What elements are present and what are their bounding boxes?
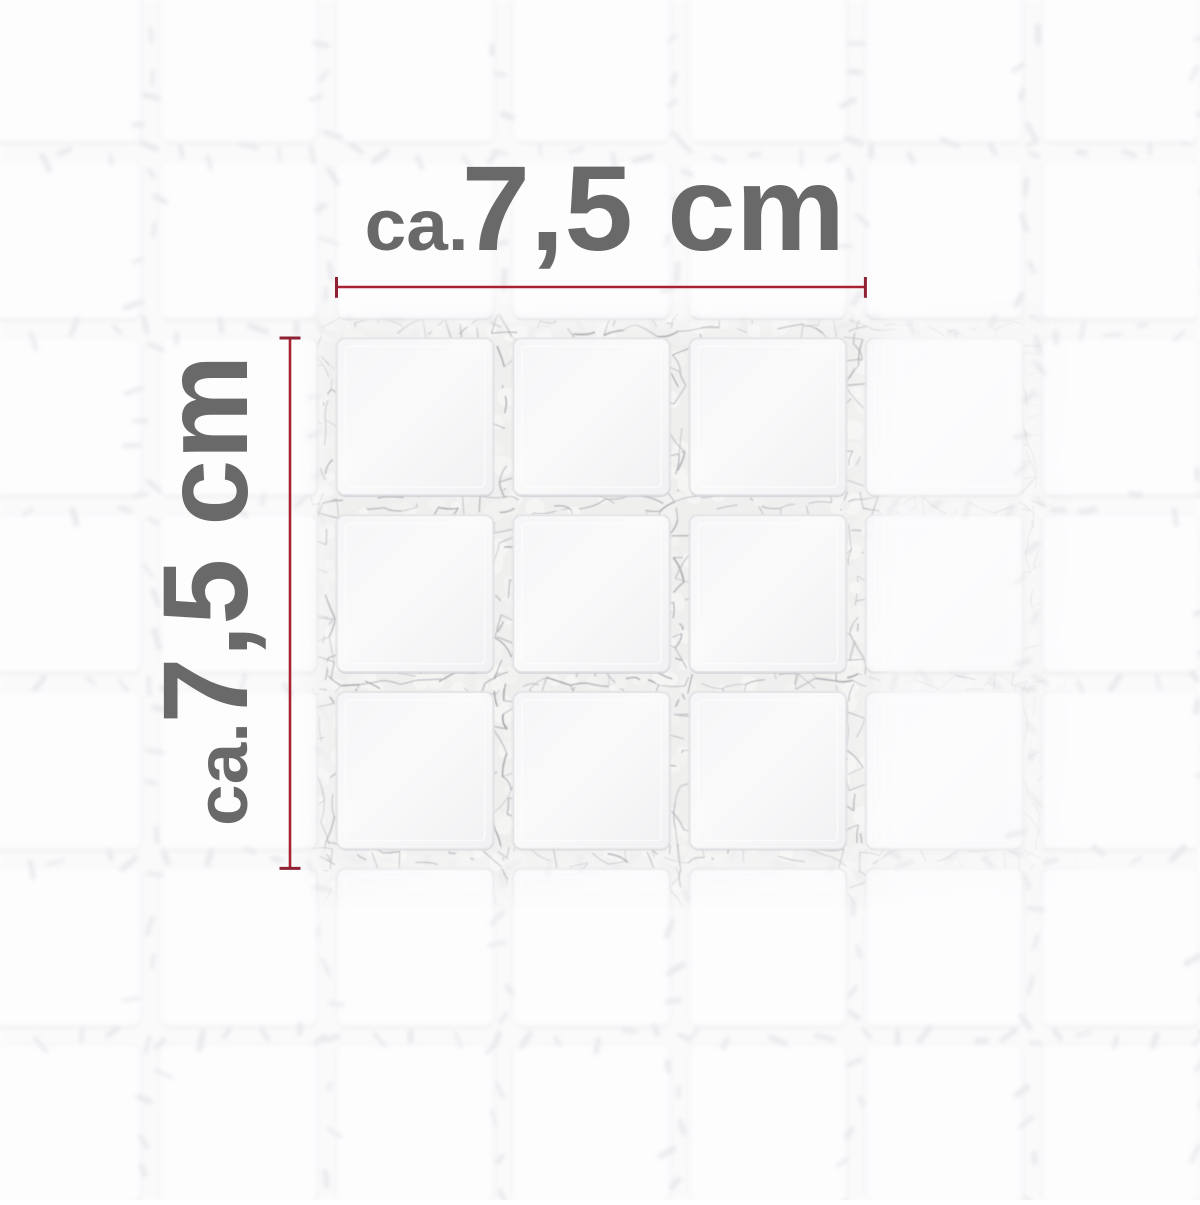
svg-text:7,5 cm: 7,5 cm [462,140,846,276]
svg-text:ca.: ca. [183,722,263,826]
svg-text:ca.: ca. [365,186,469,266]
svg-text:7,5 cm: 7,5 cm [137,355,273,724]
